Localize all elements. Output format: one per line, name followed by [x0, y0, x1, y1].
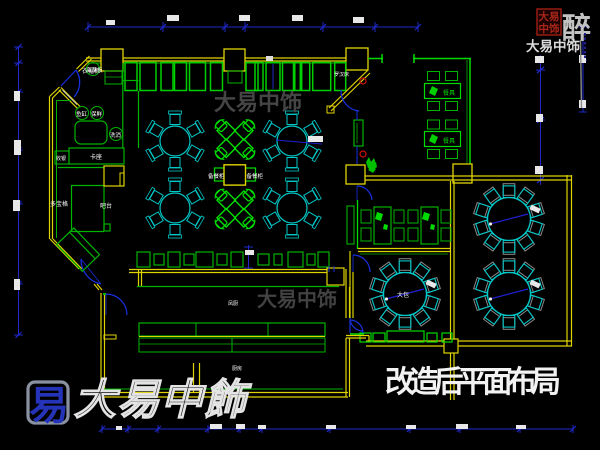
svg-text:鱼缸: 鱼缸	[76, 110, 88, 118]
svg-text:大易中饰: 大易中饰	[214, 90, 302, 115]
svg-text:大易: 大易	[539, 10, 560, 23]
svg-text:洗消: 洗消	[110, 131, 122, 139]
svg-text:收银: 收银	[56, 155, 66, 162]
svg-text:餐具: 餐具	[443, 137, 455, 145]
svg-text:备餐柜: 备餐柜	[208, 172, 225, 180]
svg-text:厨房: 厨房	[232, 365, 242, 372]
svg-text:中饰: 中饰	[539, 22, 561, 35]
svg-text:吧台: 吧台	[100, 202, 112, 210]
svg-text:罗汉床: 罗汉床	[334, 71, 349, 78]
svg-text:大包: 大包	[397, 291, 409, 299]
svg-text:大易中飾: 大易中飾	[74, 377, 252, 424]
svg-text:保鲜: 保鲜	[91, 110, 103, 118]
svg-text:改造后平面布局: 改造后平面布局	[385, 366, 561, 399]
svg-text:大易中饰: 大易中饰	[526, 38, 580, 54]
svg-text:餐具: 餐具	[443, 89, 455, 97]
svg-text:大易中饰: 大易中饰	[257, 287, 337, 311]
svg-text:高菜板: 高菜板	[86, 66, 103, 74]
svg-text:易: 易	[29, 384, 69, 428]
svg-text:多宝格: 多宝格	[50, 200, 68, 208]
svg-text:卡座: 卡座	[90, 153, 102, 161]
svg-text:备餐柜: 备餐柜	[247, 172, 264, 180]
svg-text:凤厨: 凤厨	[228, 301, 238, 307]
